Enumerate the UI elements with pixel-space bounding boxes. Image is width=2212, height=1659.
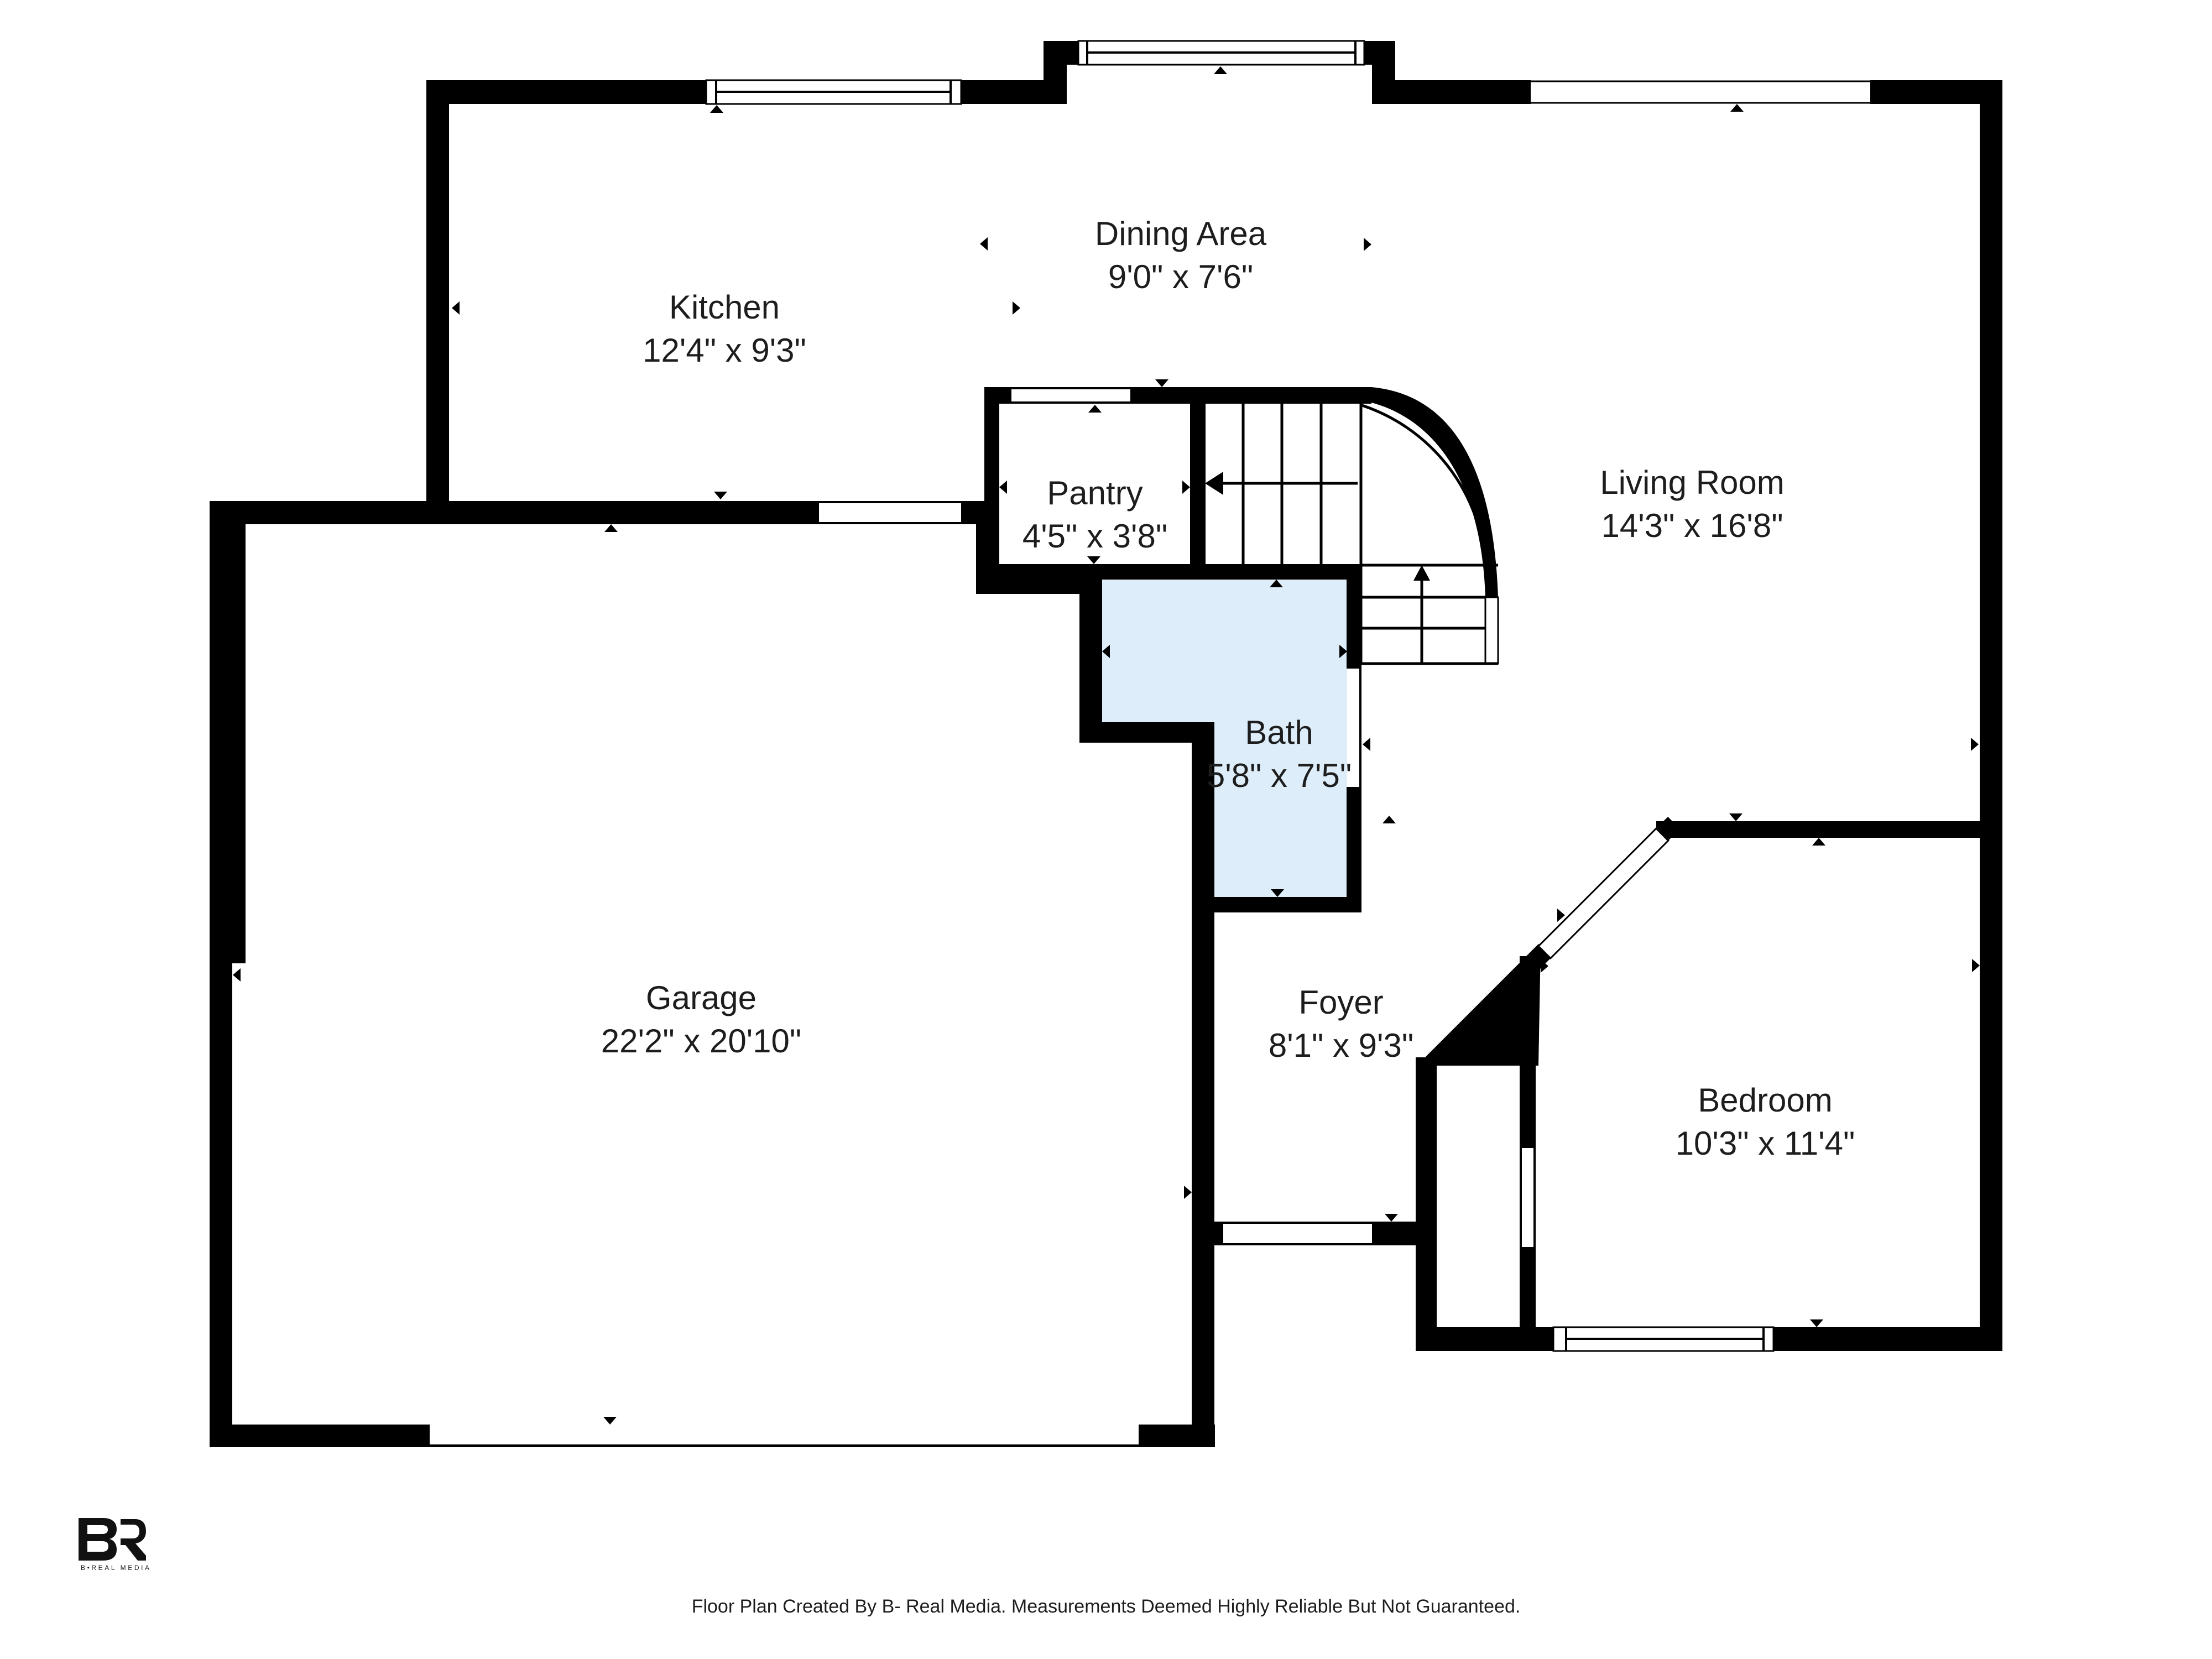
svg-text:Bedroom: Bedroom <box>1698 1082 1832 1119</box>
svg-text:Dining Area: Dining Area <box>1095 215 1267 252</box>
svg-text:Kitchen: Kitchen <box>669 289 780 326</box>
svg-text:9'0" x 7'6": 9'0" x 7'6" <box>1108 258 1253 295</box>
svg-text:12'4" x 9'3": 12'4" x 9'3" <box>643 332 806 369</box>
svg-text:8'1" x 9'3": 8'1" x 9'3" <box>1269 1027 1413 1064</box>
svg-text:Bath: Bath <box>1245 714 1313 751</box>
svg-text:Pantry: Pantry <box>1047 474 1142 512</box>
svg-text:4'5" x 3'8": 4'5" x 3'8" <box>1022 518 1167 555</box>
svg-text:B•REAL MEDIA: B•REAL MEDIA <box>81 1564 152 1572</box>
svg-text:22'2" x 20'10": 22'2" x 20'10" <box>601 1022 801 1060</box>
svg-text:14'3" x 16'8": 14'3" x 16'8" <box>1601 507 1783 544</box>
svg-text:5'8" x 7'5": 5'8" x 7'5" <box>1207 757 1352 794</box>
svg-text:10'3" x 11'4": 10'3" x 11'4" <box>1676 1125 1855 1162</box>
svg-text:Living Room: Living Room <box>1600 464 1785 501</box>
svg-text:Garage: Garage <box>646 979 757 1016</box>
svg-text:Foyer: Foyer <box>1298 984 1383 1021</box>
svg-text:Floor Plan Created By B- Real: Floor Plan Created By B- Real Media. Mea… <box>692 1596 1521 1617</box>
